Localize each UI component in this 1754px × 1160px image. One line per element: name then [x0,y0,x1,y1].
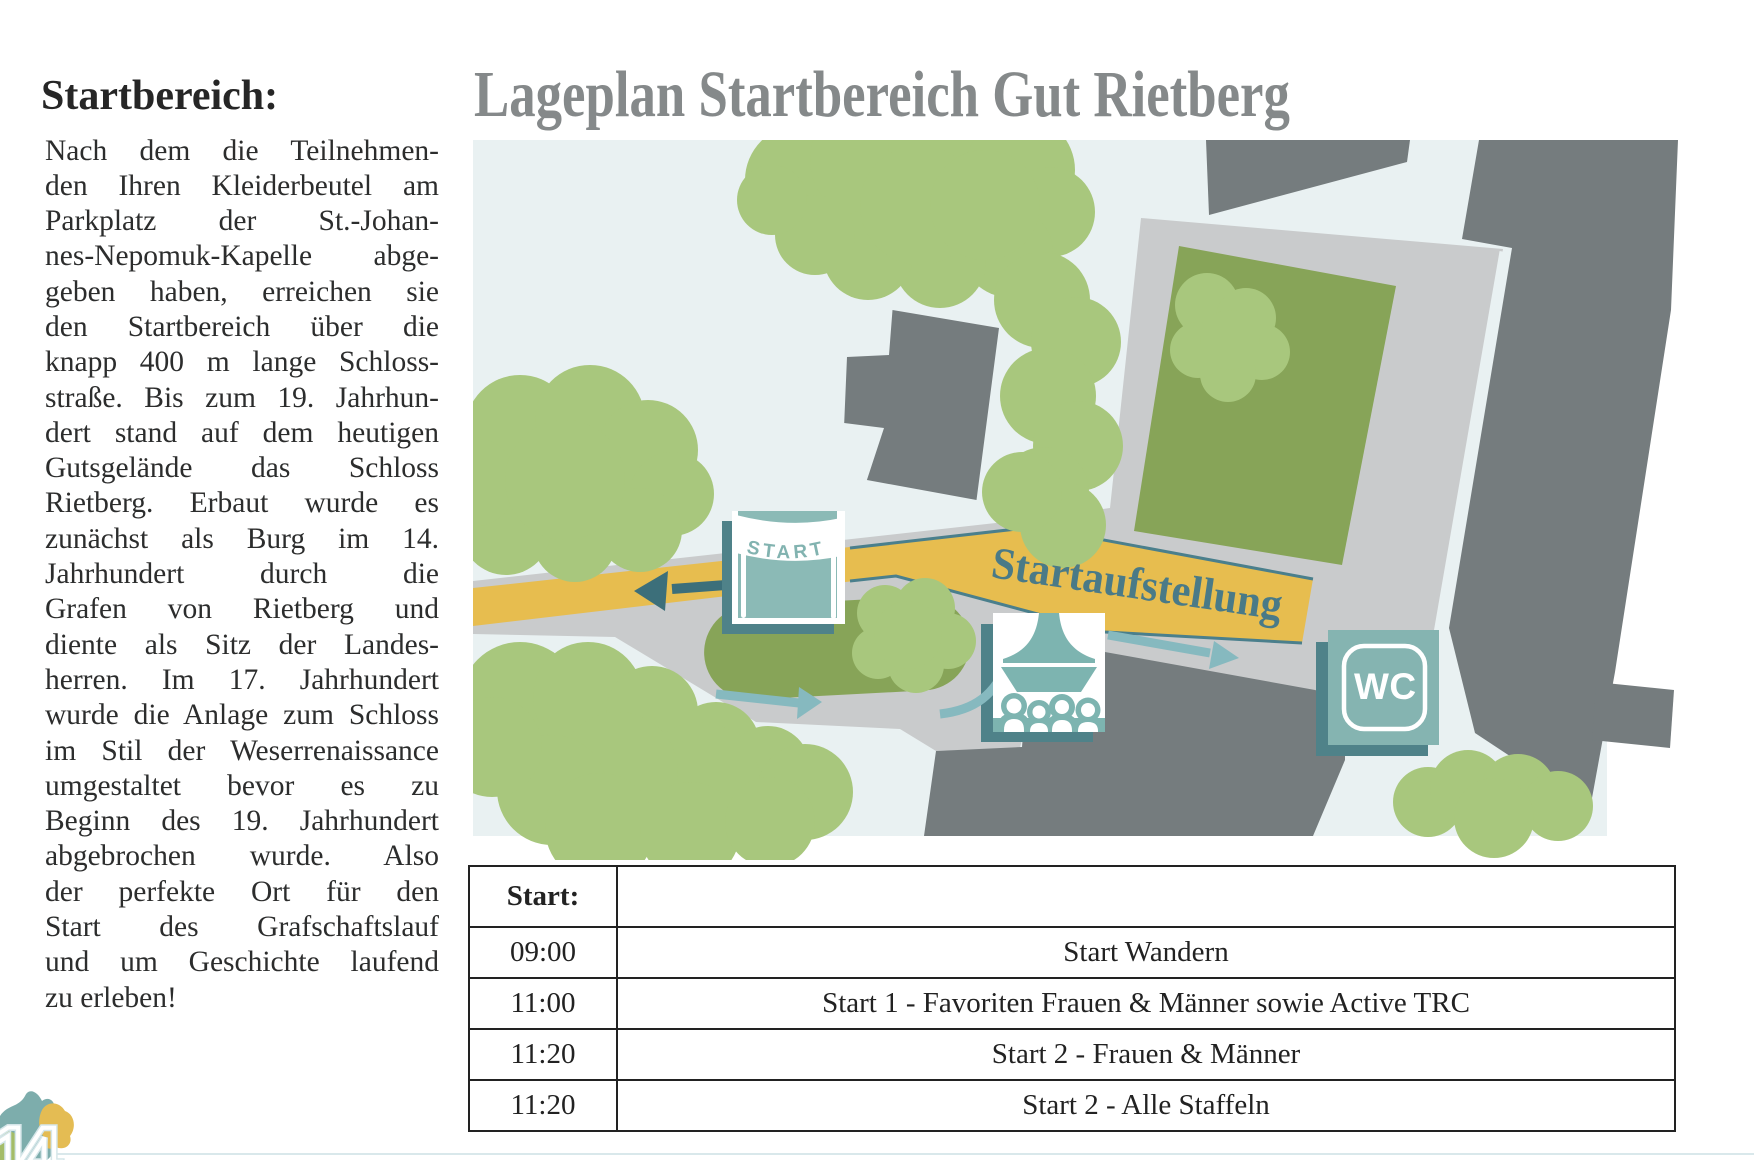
svg-text:WC: WC [1354,666,1417,707]
